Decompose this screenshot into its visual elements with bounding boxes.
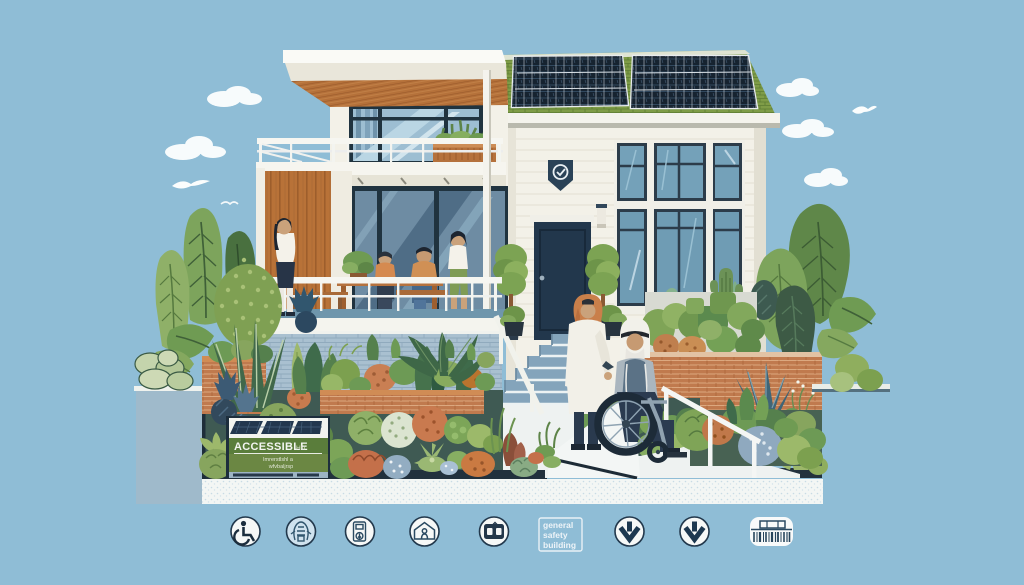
- svg-text:building: building: [543, 540, 576, 550]
- svg-text:general: general: [543, 520, 573, 530]
- svg-text:Imrerstlshl a: Imrerstlshl a: [263, 457, 294, 463]
- svg-text:HU: HU: [296, 445, 306, 452]
- svg-text:safety: safety: [543, 530, 568, 540]
- svg-text:wfvbaljrsp: wfvbaljrsp: [268, 464, 293, 470]
